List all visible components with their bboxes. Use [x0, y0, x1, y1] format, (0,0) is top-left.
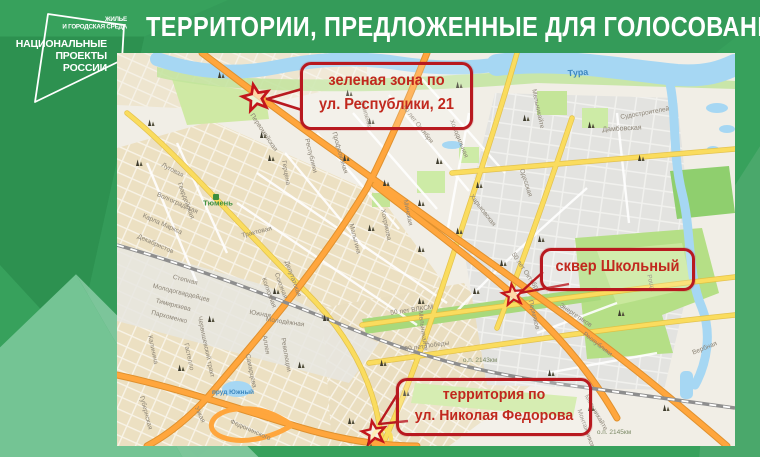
callout-pointer-1: [267, 89, 302, 110]
callout-text: территория по: [405, 384, 584, 405]
slide-root: ТЕРРИТОРИИ, ПРЕДЛОЖЕННЫЕ ДЛЯ ГОЛОСОВАНИЯ…: [0, 0, 760, 457]
logo-brand-text: РОССИИ: [63, 62, 107, 74]
star-marker-republiki[interactable]: [240, 82, 271, 112]
map-canvas[interactable]: ТураСудостроителейДамбовскаяОсипенкоРесп…: [117, 53, 735, 446]
national-projects-logo: ЖИЛЬЕ И ГОРОДСКАЯ СРЕДА НАЦИОНАЛЬНЫЕ ПРО…: [10, 4, 130, 109]
callout-territory-fedorova: территория по ул. Николая Федорова: [396, 378, 592, 436]
callout-text: ул. Республики, 21: [308, 93, 465, 117]
callout-text: зеленая зона по: [308, 69, 465, 93]
page-title: ТЕРРИТОРИИ, ПРЕДЛОЖЕННЫЕ ДЛЯ ГОЛОСОВАНИЯ: [146, 11, 760, 43]
logo-program-text: И ГОРОДСКАЯ СРЕДА: [62, 24, 127, 31]
logo-brand-text: НАЦИОНАЛЬНЫЕ: [16, 38, 107, 50]
callout-text: ул. Николая Федорова: [405, 405, 584, 426]
callout-text: сквер Школьный: [547, 251, 687, 282]
callout-skver-shkolny: сквер Школьный: [540, 248, 695, 291]
flag-outline-icon: ЖИЛЬЕ И ГОРОДСКАЯ СРЕДА НАЦИОНАЛЬНЫЕ ПРО…: [10, 4, 130, 109]
logo-brand-text: ПРОЕКТЫ: [55, 50, 107, 62]
callout-green-zone-respubliki: зеленая зона по ул. Республики, 21: [300, 62, 473, 130]
logo-program-text: ЖИЛЬЕ: [104, 16, 127, 23]
